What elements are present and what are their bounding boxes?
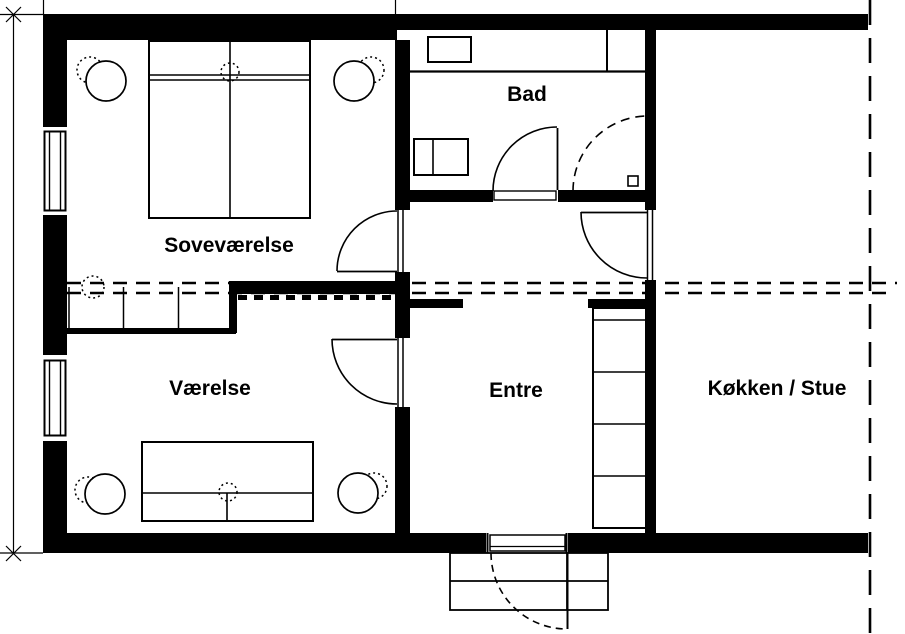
floorplan-canvas: Soveværelse Bad Værelse Entre Køkken / S… [0, 0, 905, 634]
room-label-koekken-stue: Køkken / Stue [708, 377, 847, 400]
door-gap [645, 210, 656, 280]
wall-entre-top-right [588, 299, 652, 308]
wall-mid-vertical-middle [395, 272, 410, 338]
floorplan-drawing: Soveværelse Bad Værelse Entre Køkken / S… [0, 0, 905, 634]
room-label-vaerelse: Værelse [169, 377, 251, 400]
wall-bath-bottom-left [410, 190, 493, 202]
bedside-table [85, 474, 125, 514]
wall-closet-connector [229, 281, 237, 333]
wall-bath-bottom-right [558, 190, 645, 202]
bedside-table [338, 473, 378, 513]
bedside-table [334, 61, 374, 101]
wall-mid-vertical-lower [395, 407, 410, 533]
wall-right-vertical-upper [645, 30, 656, 210]
wall-mid-vertical-upper [395, 40, 410, 210]
bedside-table [86, 61, 126, 101]
room-label-entre: Entre [489, 379, 543, 402]
door-gap [486, 533, 568, 553]
wall-left [43, 14, 67, 553]
wall-top-left [43, 14, 397, 40]
room-label-bad: Bad [507, 83, 547, 106]
wall-entre-top-left [410, 299, 463, 308]
closet-bottom-bar [63, 328, 236, 334]
wall-top-right [397, 14, 868, 30]
wall-bottom [43, 533, 868, 553]
wall-bedroom-divider [229, 281, 397, 294]
window-bedroom-frame [45, 132, 66, 211]
room-label-sovevaerelse: Soveværelse [164, 234, 294, 257]
window-room-frame [45, 361, 66, 436]
